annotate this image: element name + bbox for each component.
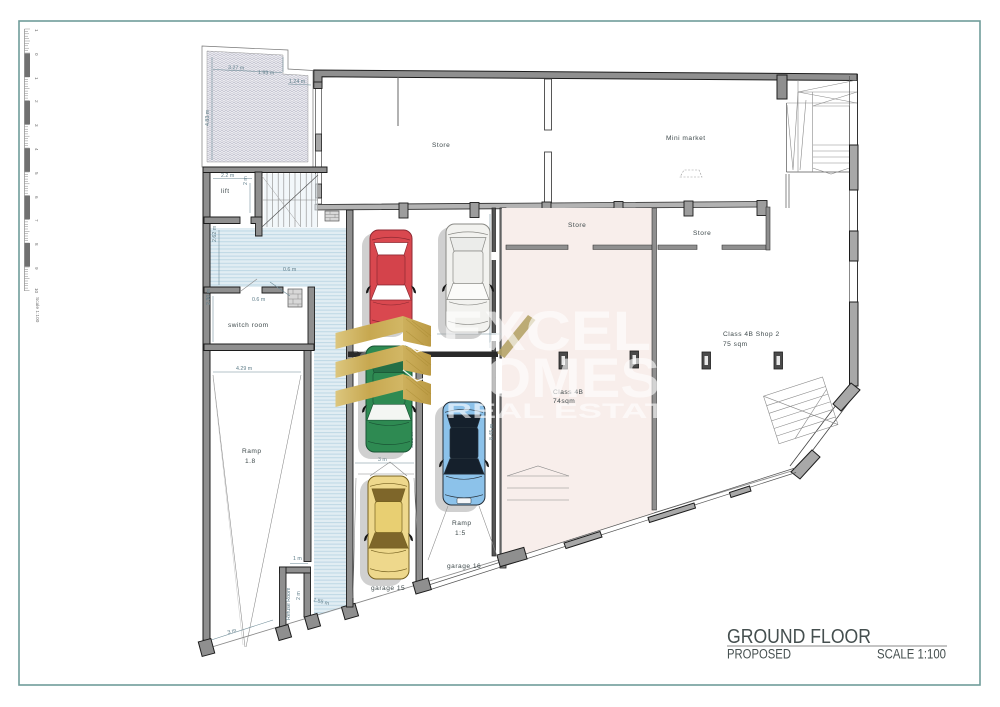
- svg-text:2.62 m: 2.62 m: [212, 225, 218, 242]
- svg-text:2.30 m: 2.30 m: [206, 288, 212, 305]
- svg-text:3.27 m: 3.27 m: [228, 65, 245, 72]
- svg-text:Store: Store: [432, 142, 450, 149]
- svg-text:PROPOSED: PROPOSED: [727, 647, 791, 662]
- svg-text:GROUND FLOOR: GROUND FLOOR: [727, 625, 871, 648]
- svg-text:4.83 m: 4.83 m: [205, 109, 211, 126]
- svg-text:switch room: switch room: [228, 322, 269, 329]
- svg-text:8.45 m: 8.45 m: [489, 423, 495, 440]
- svg-text:garage 15: garage 15: [371, 585, 405, 592]
- svg-text:4.29 m: 4.29 m: [236, 366, 253, 372]
- svg-text:4: 4: [34, 148, 39, 151]
- svg-text:Store: Store: [693, 230, 711, 237]
- svg-text:2.2 m: 2.2 m: [221, 173, 235, 179]
- svg-text:6: 6: [34, 196, 39, 199]
- svg-text:1: 1: [34, 29, 39, 32]
- svg-text:0: 0: [34, 53, 39, 56]
- svg-text:REAL ESTATE: REAL ESTATE: [446, 400, 691, 423]
- svg-text:9: 9: [34, 267, 39, 270]
- svg-text:3: 3: [34, 124, 39, 127]
- svg-text:8: 8: [34, 243, 39, 246]
- svg-text:1.24 m: 1.24 m: [289, 79, 306, 85]
- svg-text:Mini market: Mini market: [666, 135, 706, 142]
- svg-text:75 sqm: 75 sqm: [723, 341, 748, 348]
- svg-text:1.8: 1.8: [245, 458, 256, 465]
- svg-text:2 m: 2 m: [243, 176, 249, 185]
- svg-text:10: 10: [34, 288, 39, 294]
- svg-text:Class 4B Shop 2: Class 4B Shop 2: [723, 331, 780, 338]
- svg-text:0.6 m: 0.6 m: [283, 267, 297, 273]
- svg-text:1:5: 1:5: [455, 530, 466, 537]
- svg-text:0.6 m: 0.6 m: [252, 297, 266, 303]
- svg-text:1 m: 1 m: [293, 556, 302, 562]
- svg-text:Ramp: Ramp: [242, 448, 262, 455]
- svg-text:Scale 1:100: Scale 1:100: [34, 297, 40, 323]
- svg-text:Ramp: Ramp: [452, 520, 472, 527]
- svg-text:lift: lift: [221, 188, 230, 195]
- svg-text:garage 16: garage 16: [447, 563, 481, 570]
- svg-text:SCALE 1:100: SCALE 1:100: [877, 647, 946, 662]
- svg-text:2: 2: [34, 100, 39, 103]
- svg-text:5: 5: [34, 172, 39, 175]
- svg-text:1: 1: [34, 77, 39, 80]
- svg-text:2 m: 2 m: [296, 591, 302, 600]
- svg-text:Store: Store: [568, 222, 586, 229]
- svg-text:1.93 m: 1.93 m: [258, 70, 275, 77]
- svg-text:Refuse Room: Refuse Room: [286, 587, 292, 620]
- svg-text:7: 7: [34, 219, 39, 222]
